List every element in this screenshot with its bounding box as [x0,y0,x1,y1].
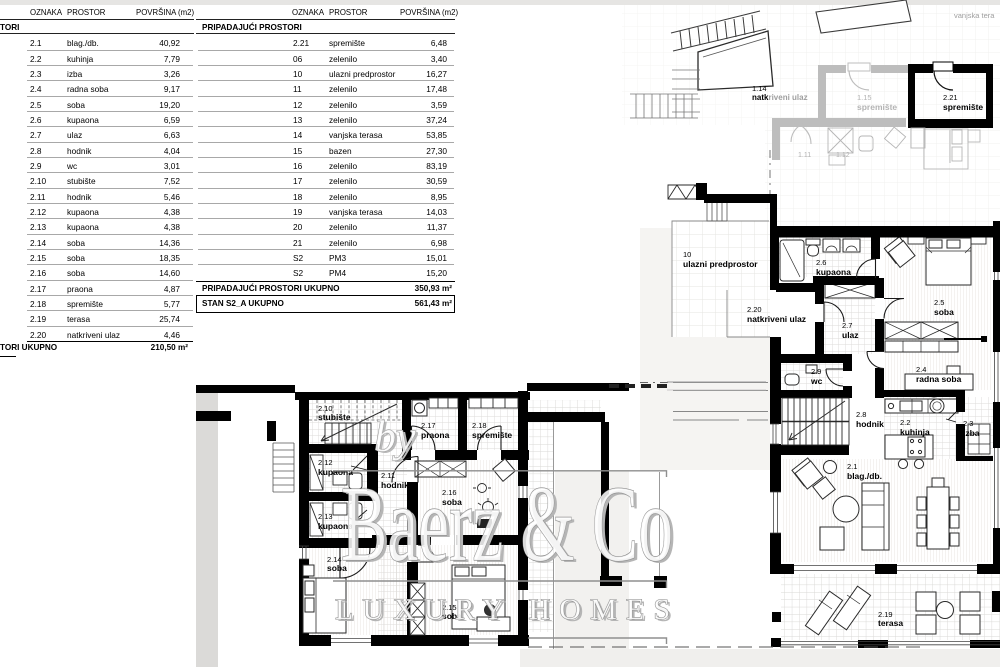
svg-text:2.8: 2.8 [856,410,866,419]
svg-text:stubište: stubište [318,412,351,422]
svg-text:1.12: 1.12 [836,152,850,159]
svg-text:2.3: 2.3 [963,419,973,428]
svg-text:vanjska tera: vanjska tera [954,11,995,20]
svg-text:2.6: 2.6 [816,258,826,267]
svg-text:ulaz: ulaz [842,330,859,340]
svg-text:ulazni predprostor: ulazni predprostor [683,259,758,269]
svg-text:natkriveni ulaz: natkriveni ulaz [752,93,808,102]
svg-text:1.14: 1.14 [752,84,767,93]
svg-text:2.7: 2.7 [842,321,852,330]
svg-text:hodnik: hodnik [856,419,884,429]
svg-text:natkriveni ulaz: natkriveni ulaz [747,314,806,324]
svg-text:kupaona: kupaona [816,267,851,277]
svg-text:10: 10 [683,250,691,259]
svg-text:1.15: 1.15 [857,93,872,102]
svg-text:spremište: spremište [472,430,512,440]
svg-text:2.12: 2.12 [318,458,333,467]
svg-text:radna soba: radna soba [916,374,962,384]
svg-text:soba: soba [934,307,954,317]
svg-text:1.11: 1.11 [798,152,811,159]
svg-text:2.5: 2.5 [934,298,944,307]
svg-text:LUXURY HOMES: LUXURY HOMES [335,593,679,626]
svg-text:2.4: 2.4 [916,365,926,374]
svg-text:izba: izba [963,428,980,438]
svg-text:terasa: terasa [878,618,903,628]
svg-text:blag./db.: blag./db. [847,471,882,481]
svg-text:spremište: spremište [857,102,897,112]
svg-text:wc: wc [810,376,823,386]
svg-text:spremište: spremište [943,102,983,112]
svg-text:2.13: 2.13 [318,512,333,521]
svg-text:2.18: 2.18 [472,421,487,430]
svg-text:2.17: 2.17 [421,421,436,430]
svg-text:2.1: 2.1 [847,462,857,471]
svg-text:by: by [374,412,416,461]
svg-text:2.2: 2.2 [900,418,910,427]
svg-text:2.21: 2.21 [943,93,958,102]
svg-text:praona: praona [421,430,450,440]
svg-text:2.20: 2.20 [747,305,762,314]
svg-text:Baerz & Co: Baerz & Co [341,465,673,584]
svg-text:2.9: 2.9 [811,367,821,376]
svg-text:kuhinja: kuhinja [900,427,930,437]
